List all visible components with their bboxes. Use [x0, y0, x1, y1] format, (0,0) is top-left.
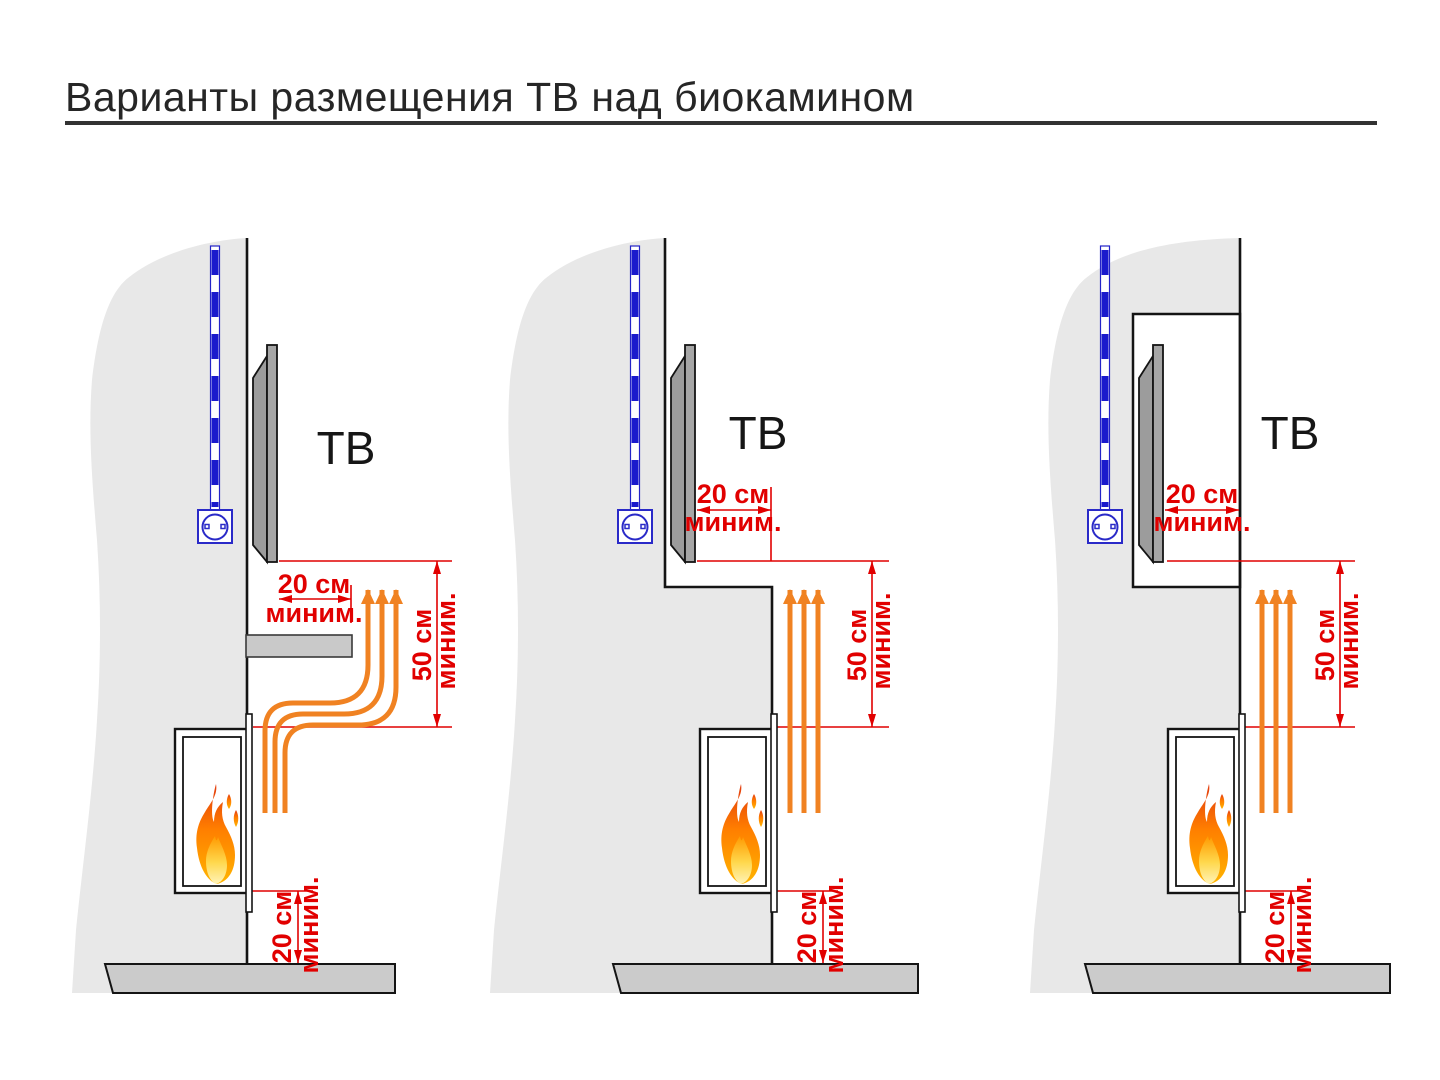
power-cable — [211, 246, 220, 511]
tv-label: ТВ — [1261, 407, 1320, 459]
clearance-dimension-qualifier: миним. — [1334, 593, 1364, 690]
floor-dimension-value: 20 см — [1260, 891, 1290, 964]
power-outlet-icon — [198, 510, 232, 543]
floor-dimension-qualifier: миним. — [294, 877, 324, 974]
floor — [613, 964, 918, 993]
outlet-pin-left — [625, 525, 629, 529]
power-cable — [631, 246, 640, 511]
floor-dimension-value: 20 см — [792, 891, 822, 964]
bio-fireplace — [1168, 714, 1245, 912]
tv-back-taper — [253, 356, 267, 562]
diagram-3-niche: ТВ50 смминим.20 смминим.20 смминим. — [1030, 238, 1390, 993]
outlet-pin-left — [1095, 525, 1099, 529]
outlet-pin-right — [1111, 525, 1115, 529]
fireplace-glass — [1239, 714, 1245, 912]
floor-dimension-qualifier: миним. — [1287, 877, 1317, 974]
outlet-pin-left — [205, 525, 209, 529]
clearance-dimension-qualifier: миним. — [866, 593, 896, 690]
tv-label: ТВ — [317, 422, 376, 474]
floor-dimension-qualifier: миним. — [819, 877, 849, 974]
placement-diagram-canvas: ТВ50 смминим.20 смминим.20 смминим.ТВ50 … — [0, 0, 1440, 1080]
diagram-1-shelf: ТВ50 смминим.20 смминим.20 смминим. — [72, 238, 461, 993]
recess-dimension-qualifier: миним. — [1154, 507, 1251, 537]
outlet-pin-right — [221, 525, 225, 529]
fireplace-glass — [246, 714, 252, 912]
diagram-2-step: ТВ50 смминим.20 смминим.20 смминим. — [490, 238, 918, 993]
clearance-dimension-qualifier: миним. — [431, 593, 461, 690]
tv-back-taper — [671, 356, 685, 562]
tv-side-view — [253, 345, 277, 562]
recess-dimension-value: 20 см — [697, 479, 770, 509]
recess-dimension-value: 20 см — [278, 569, 351, 599]
bio-fireplace — [175, 714, 252, 912]
fireplace-glass — [771, 714, 777, 912]
floor — [105, 964, 395, 993]
protective-shelf — [246, 635, 352, 657]
recess-dimension-value: 20 см — [1166, 479, 1239, 509]
tv-back-taper — [1139, 356, 1153, 562]
recess-dimension-qualifier: миним. — [685, 507, 782, 537]
outlet-pin-right — [641, 525, 645, 529]
tv-panel — [267, 345, 277, 562]
floor — [1085, 964, 1390, 993]
hot-air-flow-arrows — [790, 590, 818, 813]
hot-air-flow-arrows — [1262, 590, 1290, 813]
power-cable — [1101, 246, 1110, 511]
power-outlet-icon — [618, 510, 652, 543]
bio-fireplace — [700, 714, 777, 912]
power-outlet-icon — [1088, 510, 1122, 543]
tv-label: ТВ — [729, 407, 788, 459]
floor-dimension-value: 20 см — [267, 891, 297, 964]
recess-dimension-qualifier: миним. — [266, 598, 363, 628]
